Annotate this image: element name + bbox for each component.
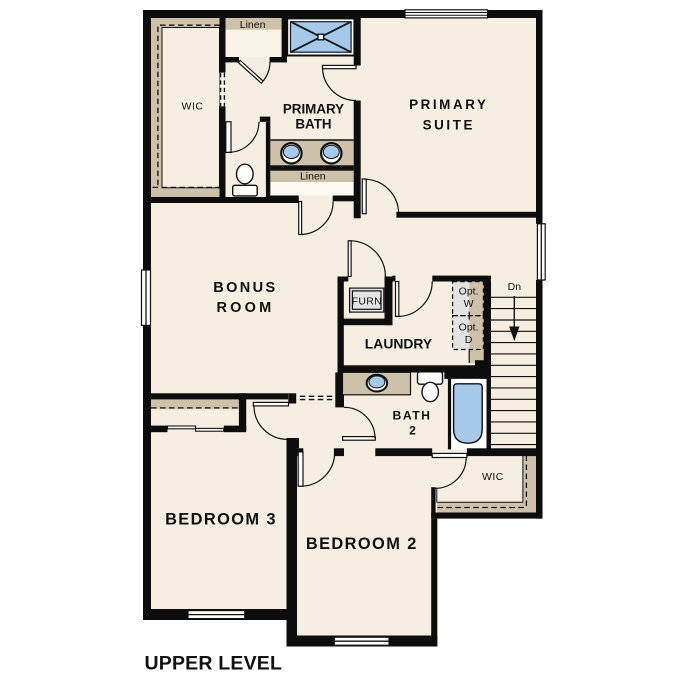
svg-text:WIC: WIC xyxy=(482,471,504,483)
svg-text:SUITE: SUITE xyxy=(423,117,475,132)
svg-text:BATH: BATH xyxy=(393,408,432,422)
svg-text:BATH: BATH xyxy=(295,117,331,132)
svg-text:W: W xyxy=(464,298,474,310)
svg-text:PRIMARY: PRIMARY xyxy=(283,102,344,117)
svg-text:2: 2 xyxy=(409,423,417,437)
svg-text:BONUS: BONUS xyxy=(213,280,277,296)
svg-text:Opt.: Opt. xyxy=(459,286,479,298)
svg-text:LAUNDRY: LAUNDRY xyxy=(365,335,433,351)
svg-text:PRIMARY: PRIMARY xyxy=(409,97,488,112)
svg-text:WIC: WIC xyxy=(182,100,204,112)
svg-text:FURN: FURN xyxy=(352,296,382,308)
svg-text:Linen: Linen xyxy=(300,171,326,183)
svg-text:Opt.: Opt. xyxy=(459,321,479,333)
svg-text:BEDROOM 3: BEDROOM 3 xyxy=(165,511,277,529)
svg-text:BEDROOM 2: BEDROOM 2 xyxy=(306,535,418,553)
svg-text:UPPER LEVEL: UPPER LEVEL xyxy=(144,652,282,674)
svg-text:Linen: Linen xyxy=(240,19,266,31)
svg-text:Dn: Dn xyxy=(508,281,522,293)
svg-text:D: D xyxy=(465,334,473,346)
svg-text:ROOM: ROOM xyxy=(216,300,274,316)
